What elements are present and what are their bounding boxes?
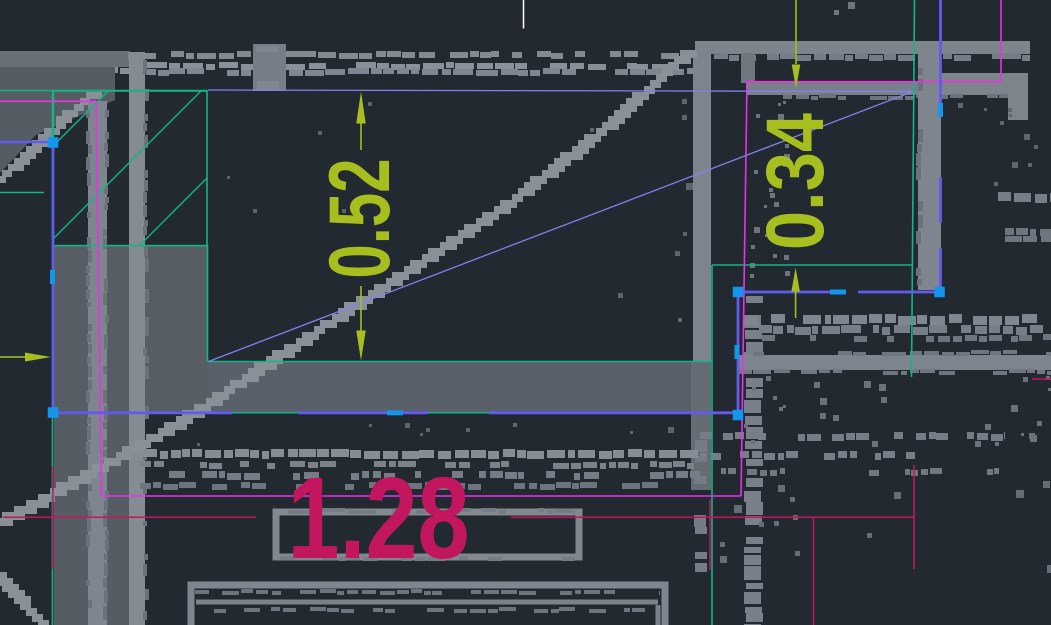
svg-text:1.28: 1.28: [288, 453, 470, 583]
svg-text:0.34: 0.34: [750, 113, 841, 250]
svg-text:0.52: 0.52: [312, 159, 408, 279]
